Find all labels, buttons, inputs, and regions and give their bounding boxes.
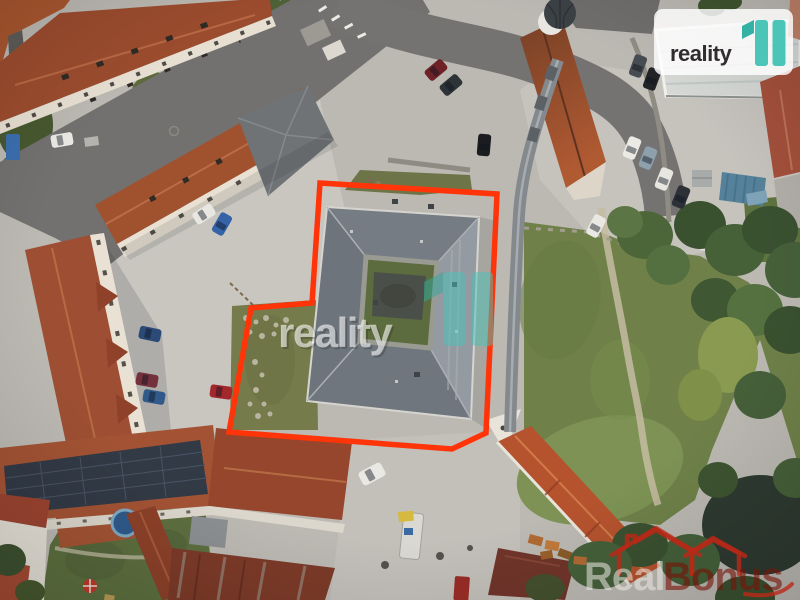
realbonus-text-real: Real <box>584 555 665 599</box>
realbonus-text-bonus: Bonus <box>663 555 782 599</box>
aerial-photo: reality reality 11 Real Bonus reality 11 <box>0 0 800 600</box>
aerial-photo-scene: reality reality 11 Real Bonus reality 11 <box>0 0 800 600</box>
watermark-text: reality <box>278 309 393 356</box>
logo-text: reality <box>670 41 733 66</box>
reality-logo-badge: reality 11 <box>654 9 793 75</box>
vignette <box>0 0 800 600</box>
